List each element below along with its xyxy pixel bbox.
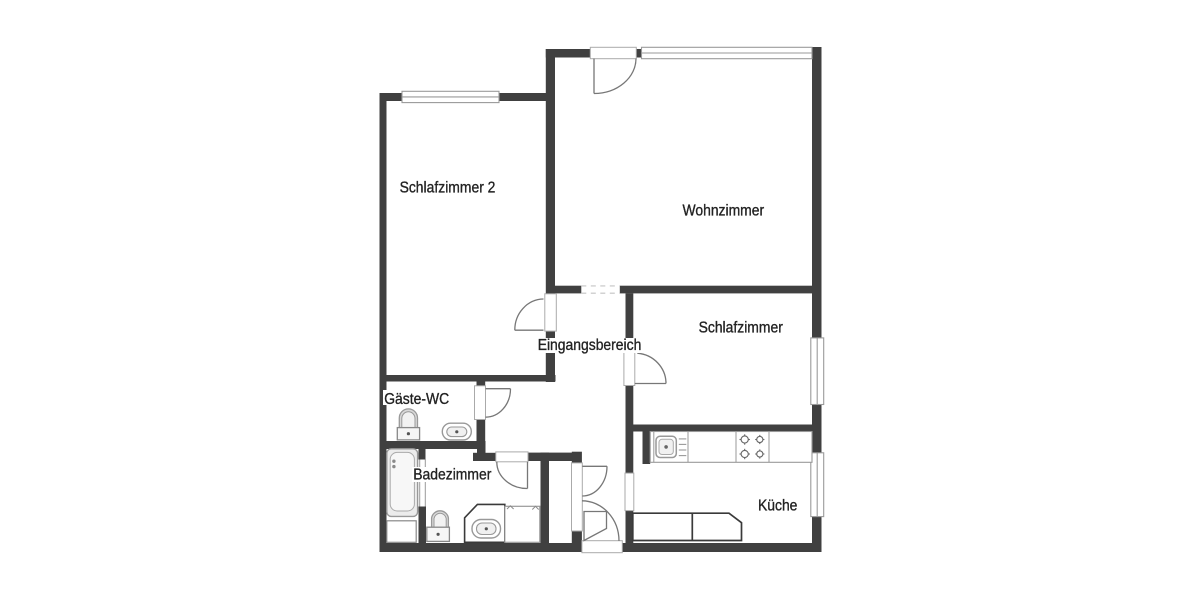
svg-text:Eingangsbereich: Eingangsbereich [538,336,642,354]
svg-text:Gäste-WC: Gäste-WC [384,390,449,408]
svg-text:Schlafzimmer: Schlafzimmer [699,319,783,337]
svg-text:Schlafzimmer 2: Schlafzimmer 2 [400,179,496,197]
svg-text:Küche: Küche [758,497,797,515]
svg-text:Wohnzimmer: Wohnzimmer [682,202,764,220]
svg-text:Badezimmer: Badezimmer [413,466,491,484]
